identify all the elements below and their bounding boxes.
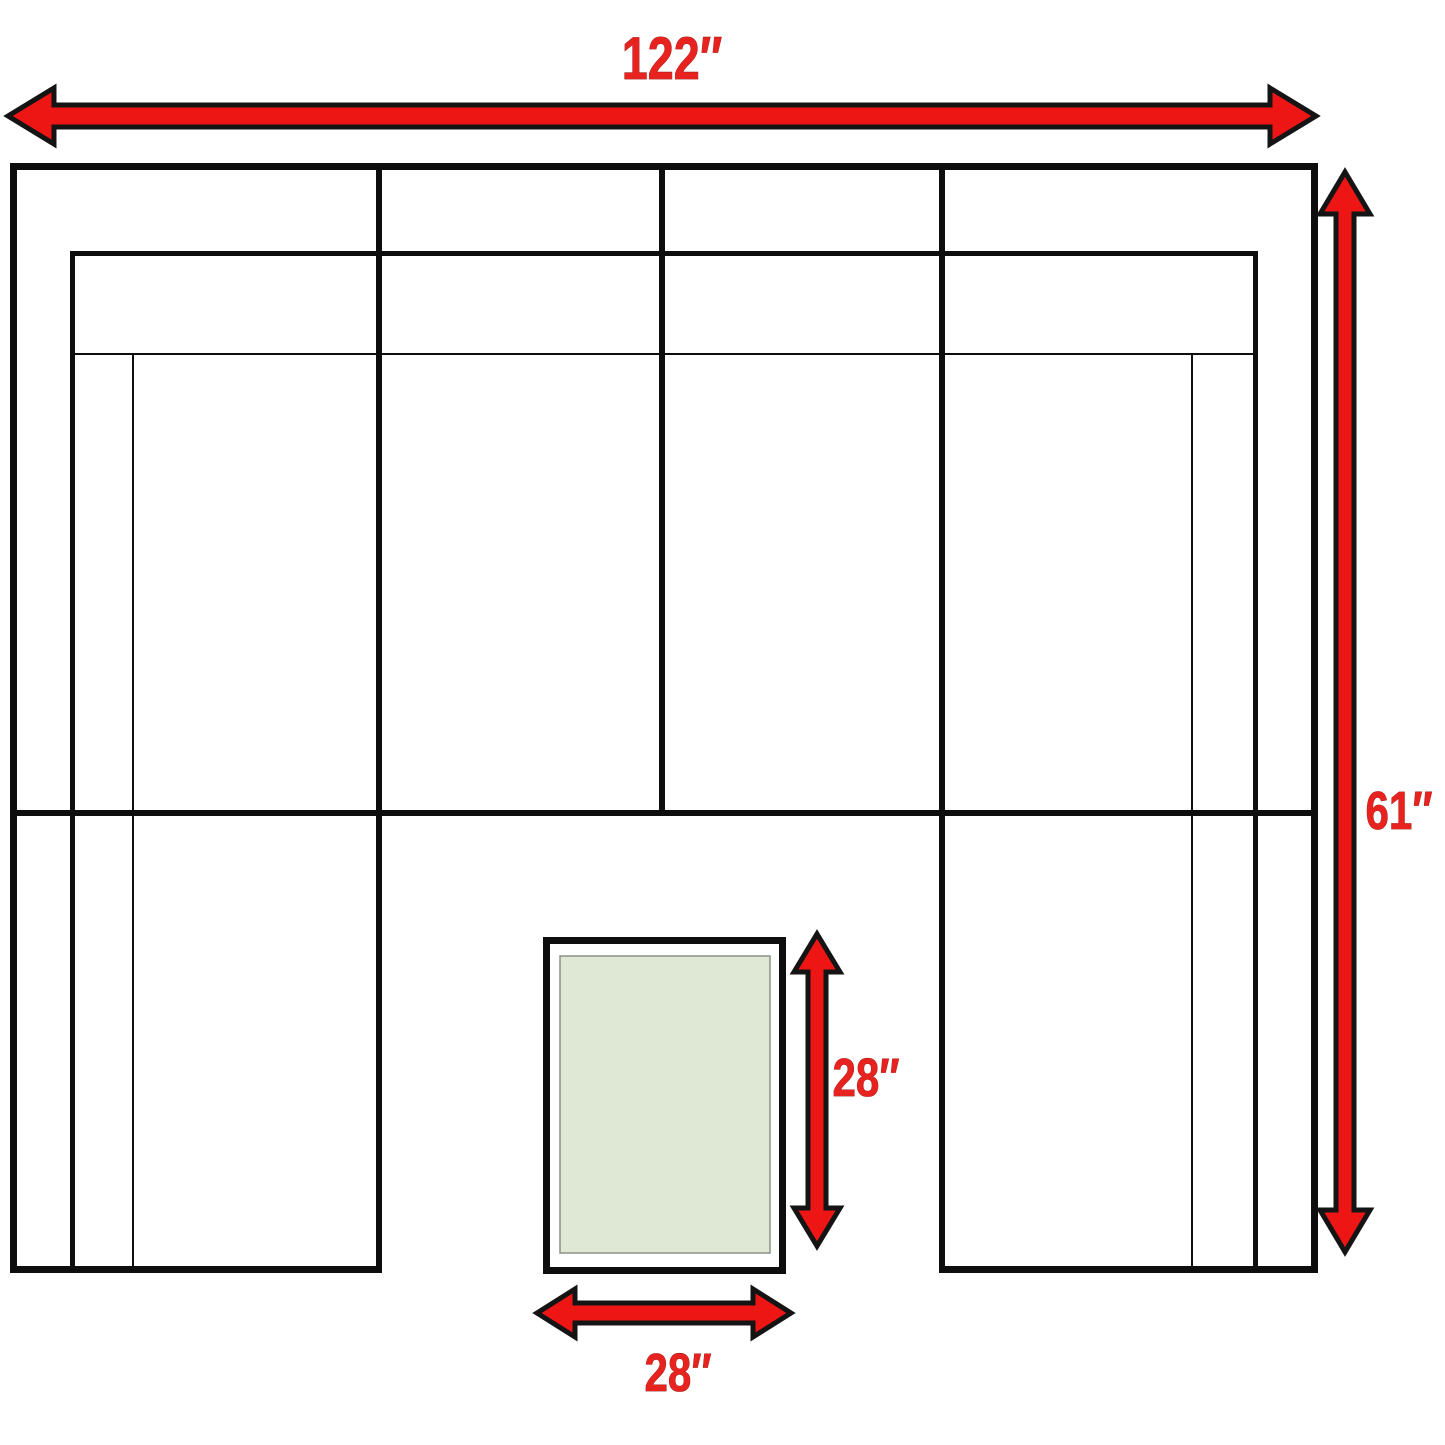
left-arm-bottom-edge (10, 1266, 382, 1273)
ottoman (547, 941, 783, 1271)
diagram-drawing: 122″ 61″ 28″ 28″ (0, 0, 1445, 1445)
overall-depth-arrow (1320, 172, 1370, 1252)
section-divider-center (659, 163, 665, 816)
section-divider-left (376, 163, 382, 1273)
left-arm-inner-line (132, 353, 134, 1268)
overall-width-label: 122″ (622, 25, 722, 92)
sofa-left-edge (10, 163, 17, 1273)
backrest-inner-left-line (70, 251, 75, 1273)
overall-width-arrow (8, 88, 1316, 144)
overall-depth-label: 61″ (1365, 781, 1432, 841)
ottoman-width-label: 28″ (644, 1343, 711, 1403)
ottoman-width-arrow (537, 1289, 791, 1337)
right-arm-bottom-edge (939, 1266, 1318, 1273)
backrest-inner-right-line (1253, 251, 1258, 1273)
ottoman-cushion (560, 956, 770, 1253)
backrest-inner-top-line (70, 251, 1258, 256)
sectional-dimension-diagram: 122″ 61″ 28″ 28″ (0, 0, 1445, 1445)
ottoman-depth-label: 28″ (832, 1048, 899, 1108)
sofa-right-edge (1311, 163, 1318, 1273)
right-arm-inner-line (1191, 353, 1193, 1268)
section-divider-right (939, 163, 945, 1273)
back-cushion-front-line (74, 353, 1254, 355)
